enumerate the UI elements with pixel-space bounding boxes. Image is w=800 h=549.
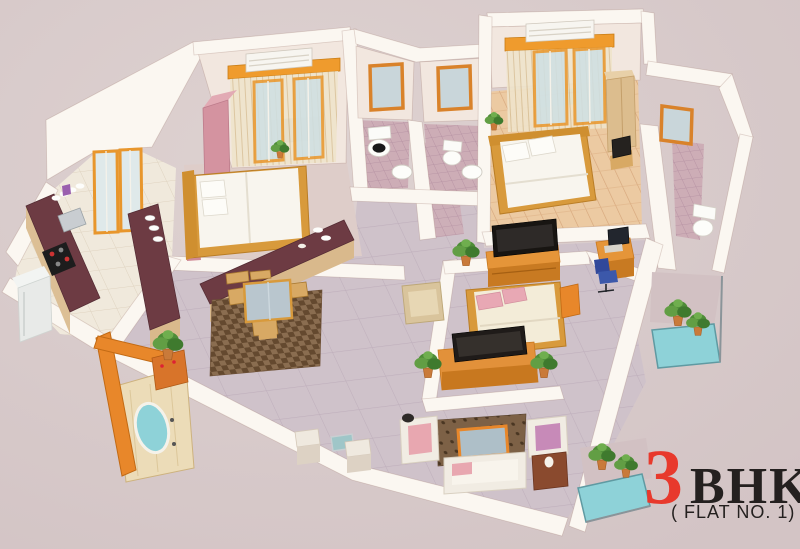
balcony-right: [650, 272, 722, 368]
ottoman-icon: [345, 439, 371, 473]
ac-unit-icon: [526, 20, 594, 42]
plan-subtitle: ( FLAT NO. 1): [671, 502, 795, 523]
tv-icon: [492, 219, 558, 257]
balcony-floor: [650, 272, 722, 326]
master-right-band: [641, 11, 657, 64]
wash-basin-icon: [462, 165, 482, 179]
tv-unit: [486, 219, 560, 287]
balcony-aqua-floor: [652, 324, 720, 368]
floor-plan-render: 3 BHK ( FLAT NO. 1): [0, 0, 800, 549]
wash-basin-icon: [392, 165, 412, 179]
sofa-icon: [444, 452, 526, 494]
lounge-chair-icon: [402, 282, 444, 324]
ottoman-icon: [295, 429, 320, 465]
wardrobe-icon: [560, 284, 580, 318]
tv-icon: [610, 136, 633, 170]
side-table-icon: [532, 452, 568, 490]
master-left-wall: [477, 15, 492, 244]
chair-icon: [250, 270, 271, 280]
armchair-icon: [400, 414, 439, 465]
mirror-icon: [438, 66, 471, 110]
double-bed-icon: [488, 126, 596, 214]
chair-icon: [290, 282, 308, 298]
mirror-icon: [661, 106, 692, 144]
armchair-icon: [527, 416, 568, 458]
coffee-table-icon: [458, 426, 508, 458]
mirror-icon: [370, 64, 403, 110]
